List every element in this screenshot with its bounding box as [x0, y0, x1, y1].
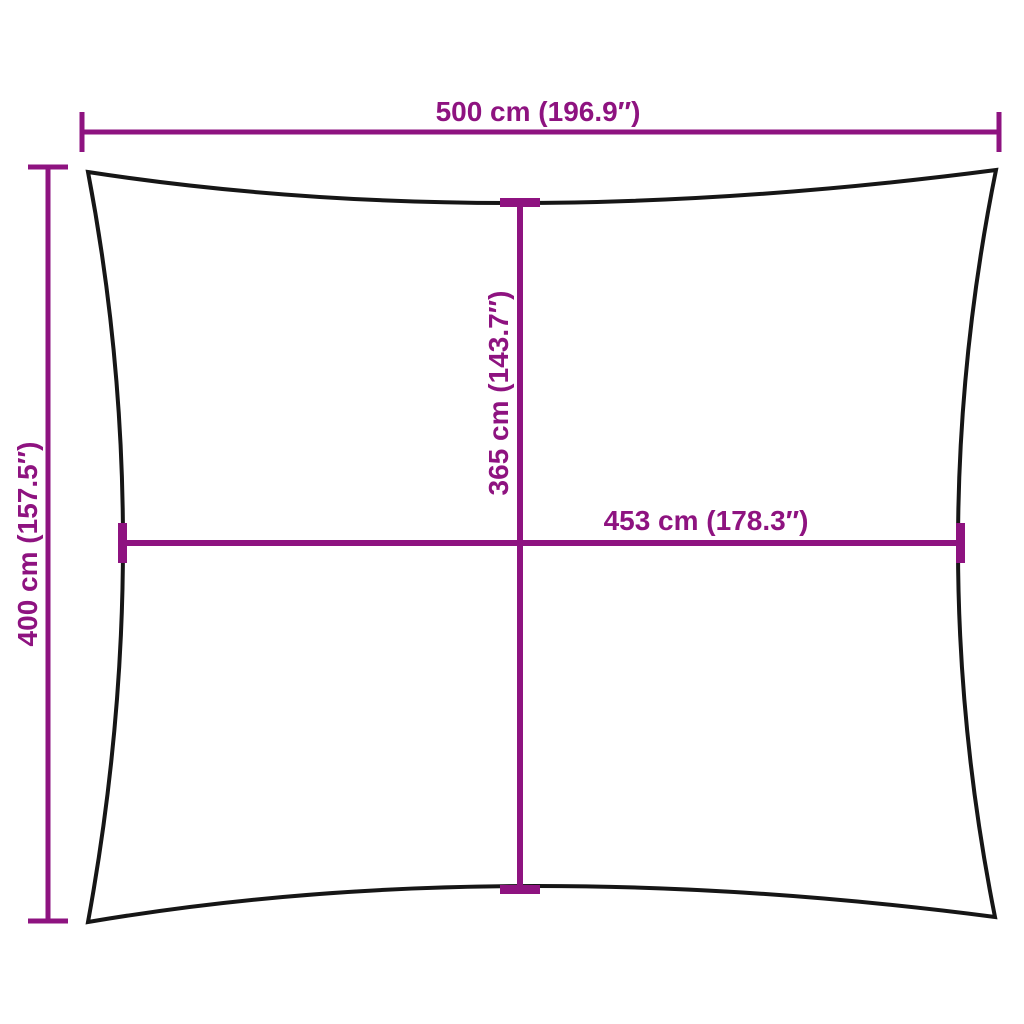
- inner-width-dimension-label: 453 cm (178.3″): [604, 505, 809, 536]
- dimension-diagram: 500 cm (196.9″) 400 cm (157.5″) 365 cm (…: [0, 0, 1024, 1024]
- width-dimension: 500 cm (196.9″): [82, 96, 999, 152]
- inner-height-dimension-label: 365 cm (143.7″): [483, 291, 514, 496]
- dimension-diagram-canvas: 500 cm (196.9″) 400 cm (157.5″) 365 cm (…: [0, 0, 1024, 1024]
- inner-height-dimension-cap-bottom: [500, 885, 540, 894]
- inner-height-dimension-cap-top: [500, 198, 540, 207]
- height-dimension-label: 400 cm (157.5″): [12, 442, 43, 647]
- height-dimension: 400 cm (157.5″): [12, 167, 68, 921]
- width-dimension-label: 500 cm (196.9″): [436, 96, 641, 127]
- inner-width-dimension-cap-right: [956, 523, 965, 563]
- inner-width-dimension-cap-left: [118, 523, 127, 563]
